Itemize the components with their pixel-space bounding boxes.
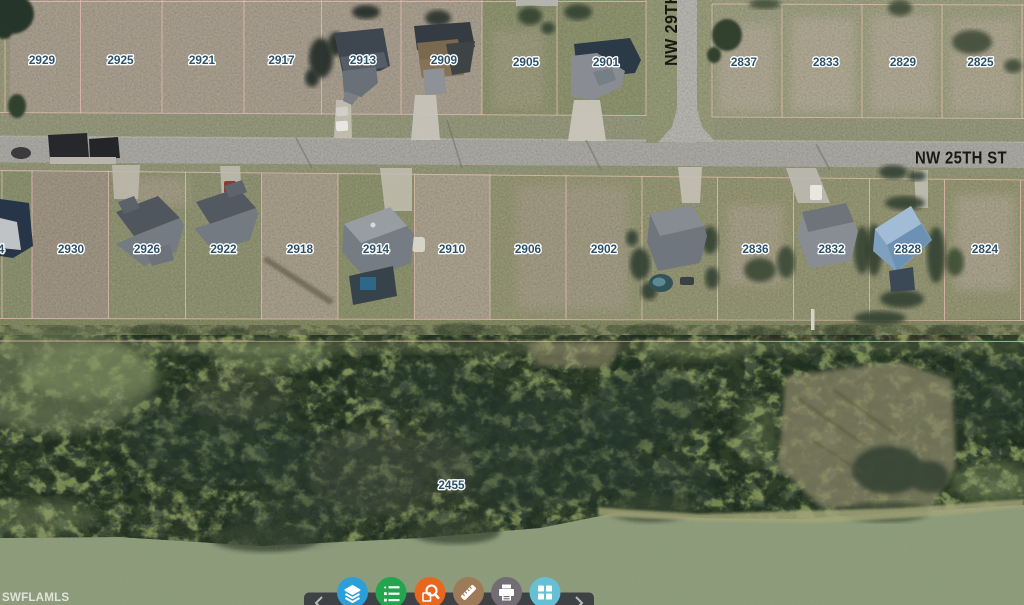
svg-text:2913: 2913: [350, 53, 377, 67]
svg-text:2929: 2929: [29, 53, 56, 67]
svg-text:4: 4: [0, 242, 5, 256]
svg-text:2828: 2828: [895, 242, 922, 256]
svg-text:2930: 2930: [58, 242, 85, 256]
svg-text:SWFLAMLS: SWFLAMLS: [2, 591, 69, 604]
svg-text:2906: 2906: [515, 242, 542, 256]
svg-text:2824: 2824: [972, 242, 999, 256]
svg-text:NW 29TH TER: NW 29TH TER: [661, 0, 681, 66]
svg-text:2910: 2910: [439, 242, 466, 256]
svg-text:2921: 2921: [189, 53, 216, 67]
svg-text:2901: 2901: [593, 55, 620, 69]
svg-text:2836: 2836: [742, 242, 769, 256]
svg-text:2832: 2832: [818, 242, 845, 256]
svg-text:2918: 2918: [287, 242, 314, 256]
svg-text:2825: 2825: [967, 55, 994, 69]
svg-text:2909: 2909: [431, 53, 458, 67]
svg-text:2926: 2926: [134, 242, 161, 256]
svg-text:2914: 2914: [363, 242, 390, 256]
svg-text:2837: 2837: [731, 55, 758, 69]
svg-text:NW 25TH ST: NW 25TH ST: [915, 148, 1007, 168]
svg-text:2922: 2922: [210, 242, 237, 256]
svg-text:2833: 2833: [813, 55, 840, 69]
svg-text:2902: 2902: [591, 242, 618, 256]
svg-text:2905: 2905: [513, 55, 540, 69]
svg-text:2917: 2917: [268, 53, 295, 67]
svg-text:2925: 2925: [107, 53, 134, 67]
svg-text:2455: 2455: [438, 478, 465, 492]
svg-text:2829: 2829: [890, 55, 917, 69]
